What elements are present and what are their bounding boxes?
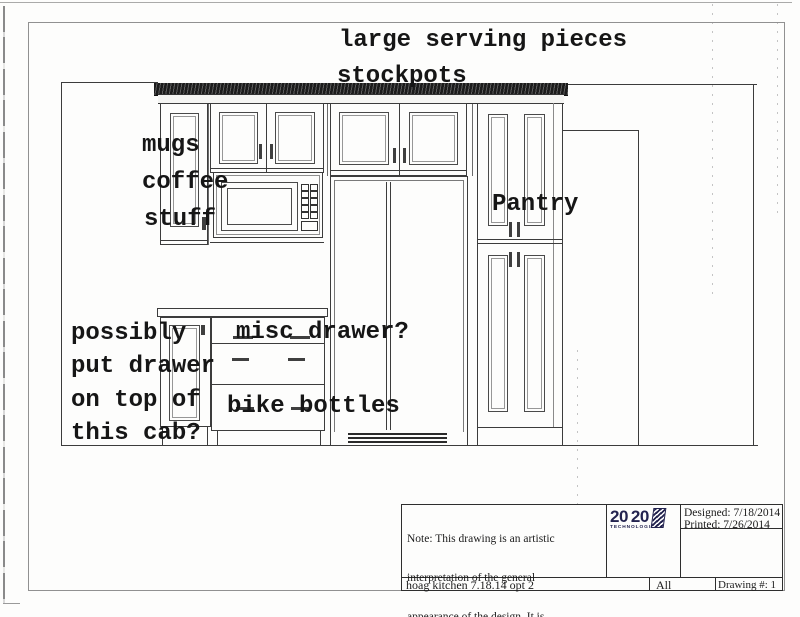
mid-rail-top bbox=[477, 239, 563, 240]
logo-20-first: 20 bbox=[610, 508, 628, 525]
fridge-grille-bar bbox=[348, 437, 447, 439]
mid-rail-bottom bbox=[477, 243, 563, 244]
wall-right bbox=[753, 84, 754, 446]
wall-left bbox=[61, 82, 62, 446]
microwave-button bbox=[301, 198, 309, 205]
toe-kick-side-left bbox=[217, 431, 218, 445]
annotation-mugs: mugs bbox=[142, 134, 200, 158]
fridge-inner-top bbox=[334, 180, 464, 181]
microwave-button bbox=[310, 212, 318, 219]
door-panel-left bbox=[219, 112, 258, 164]
microwave-button bbox=[301, 212, 309, 219]
drawing-number: Drawing #: 1 bbox=[718, 579, 776, 592]
ceiling-line-right bbox=[566, 84, 757, 85]
microwave-button bbox=[301, 205, 309, 212]
title-block-divider-1 bbox=[606, 504, 607, 577]
lower-door-panel-left bbox=[488, 255, 508, 412]
door-handle-right bbox=[403, 148, 406, 163]
toe-kick-side-right bbox=[207, 427, 208, 445]
2020-technologies-logo: 20 20 TECHNOLOGIES bbox=[610, 508, 665, 530]
toe-kick-side-right bbox=[320, 431, 321, 445]
door-panel-right bbox=[275, 112, 315, 164]
door-handle-left bbox=[393, 148, 396, 163]
logo-stripe-icon bbox=[650, 508, 666, 528]
microwave-button bbox=[301, 191, 309, 198]
annotation-misc-drawer: misc drawer? bbox=[236, 321, 409, 345]
microwave-button bbox=[301, 184, 309, 191]
filler-strip-2 bbox=[327, 104, 328, 176]
ceiling-line-left bbox=[61, 82, 158, 83]
scan-edge-left bbox=[3, 6, 5, 604]
door-divider bbox=[266, 104, 267, 172]
printed-date: Printed: 7/26/2014 bbox=[684, 519, 770, 532]
drawer-divider-2 bbox=[211, 384, 325, 385]
bottom-strip-divider-2 bbox=[715, 577, 716, 591]
project-title: hoag kitchen 7.18.14 opt 2 bbox=[406, 579, 534, 592]
door-handle-right bbox=[270, 144, 273, 159]
microwave-button bbox=[310, 184, 318, 191]
logo-20-second: 20 bbox=[631, 508, 649, 525]
disclaimer-line: Note: This drawing is an artistic bbox=[407, 533, 566, 546]
drawer-handle bbox=[232, 358, 249, 361]
disclaimer-note: Note: This drawing is an artistic interp… bbox=[407, 507, 566, 617]
bottom-strip-divider-1 bbox=[649, 577, 650, 591]
microwave-button bbox=[310, 205, 318, 212]
annotation-on-top-of: on top of bbox=[71, 389, 201, 413]
door-divider bbox=[399, 104, 400, 175]
cabinet-bottom-rail bbox=[160, 240, 208, 241]
title-block-divider-2 bbox=[680, 504, 681, 577]
upper-door-handle-right bbox=[517, 222, 520, 237]
fridge-grille-bar bbox=[348, 441, 447, 443]
lower-door-panel-right bbox=[524, 255, 545, 412]
disclaimer-line: appearance of the design. It is bbox=[407, 611, 566, 617]
scanned-kitchen-elevation-sheet: large serving pieces stockpots mugs coff… bbox=[0, 0, 800, 617]
fridge-inner-right bbox=[463, 180, 464, 432]
door-handle-left bbox=[259, 144, 262, 159]
microwave-open-button bbox=[301, 221, 318, 231]
soffit-step-vertical bbox=[638, 130, 639, 446]
countertop bbox=[157, 308, 328, 317]
lower-door-handle-right bbox=[517, 252, 520, 267]
drawer-handle bbox=[288, 358, 305, 361]
annotation-large-serving-pieces: large serving pieces bbox=[339, 29, 627, 53]
door-handle bbox=[201, 325, 205, 335]
microwave-button bbox=[310, 198, 318, 205]
microwave-window bbox=[227, 188, 292, 225]
door-panel-left bbox=[339, 112, 389, 165]
door-panel-right bbox=[409, 112, 458, 165]
sheet-label: All bbox=[656, 579, 671, 592]
scan-edge-corner bbox=[3, 603, 20, 604]
annotation-possibly: possibly bbox=[71, 322, 186, 346]
annotation-coffee: coffee bbox=[142, 171, 228, 195]
annotation-stockpots: stockpots bbox=[337, 65, 467, 89]
lower-door-handle-left bbox=[509, 252, 512, 267]
soffit-step-horizontal bbox=[562, 130, 638, 131]
filler-strip-3 bbox=[472, 104, 473, 176]
fridge-grille-bar bbox=[348, 433, 447, 435]
upper-door-handle-left bbox=[509, 222, 512, 237]
annotation-stuff: stuff bbox=[144, 208, 216, 232]
annotation-this-cab: this cab? bbox=[71, 422, 201, 446]
annotation-pantry: Pantry bbox=[492, 193, 578, 217]
toe-kick-line bbox=[477, 427, 563, 428]
annotation-bike-bottles: bike bottles bbox=[227, 395, 400, 419]
microwave-shelf-line bbox=[210, 242, 324, 243]
cabinet-side-line bbox=[553, 103, 554, 427]
microwave-button bbox=[310, 191, 318, 198]
annotation-put-drawer: put drawer bbox=[71, 355, 215, 379]
scan-edge-top bbox=[0, 2, 792, 3]
